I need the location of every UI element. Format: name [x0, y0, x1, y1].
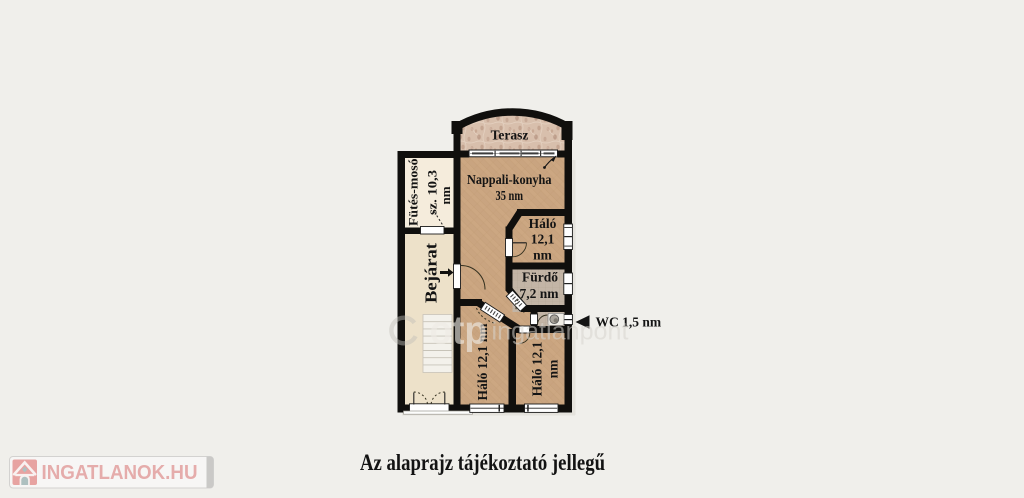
svg-text:7,2 nm: 7,2 nm: [519, 286, 559, 301]
svg-text:otp: otp: [430, 309, 488, 353]
svg-text:Bejárat: Bejárat: [421, 243, 440, 303]
svg-text:Az alaprajz tájékoztató jelleg: Az alaprajz tájékoztató jellegű: [360, 450, 605, 475]
svg-text:Nappali-konyha: Nappali-konyha: [467, 172, 552, 187]
svg-text:Háló: Háló: [529, 216, 557, 231]
svg-text:ingatlanpont: ingatlanpont: [492, 318, 629, 346]
svg-text:nm: nm: [546, 359, 561, 379]
svg-text:12,1: 12,1: [531, 232, 555, 247]
svg-text:Háló 12,1: Háló 12,1: [530, 341, 545, 396]
svg-text:nm: nm: [533, 248, 553, 263]
svg-text:nm: nm: [438, 186, 453, 204]
svg-text:Fürdő: Fürdő: [522, 270, 558, 285]
svg-text:35 nm: 35 nm: [496, 188, 524, 203]
svg-text:Fütés-mosó: Fütés-mosó: [406, 159, 421, 227]
svg-text:Terasz: Terasz: [491, 128, 529, 143]
svg-text:INGATLANOK.HU: INGATLANOK.HU: [42, 462, 198, 484]
